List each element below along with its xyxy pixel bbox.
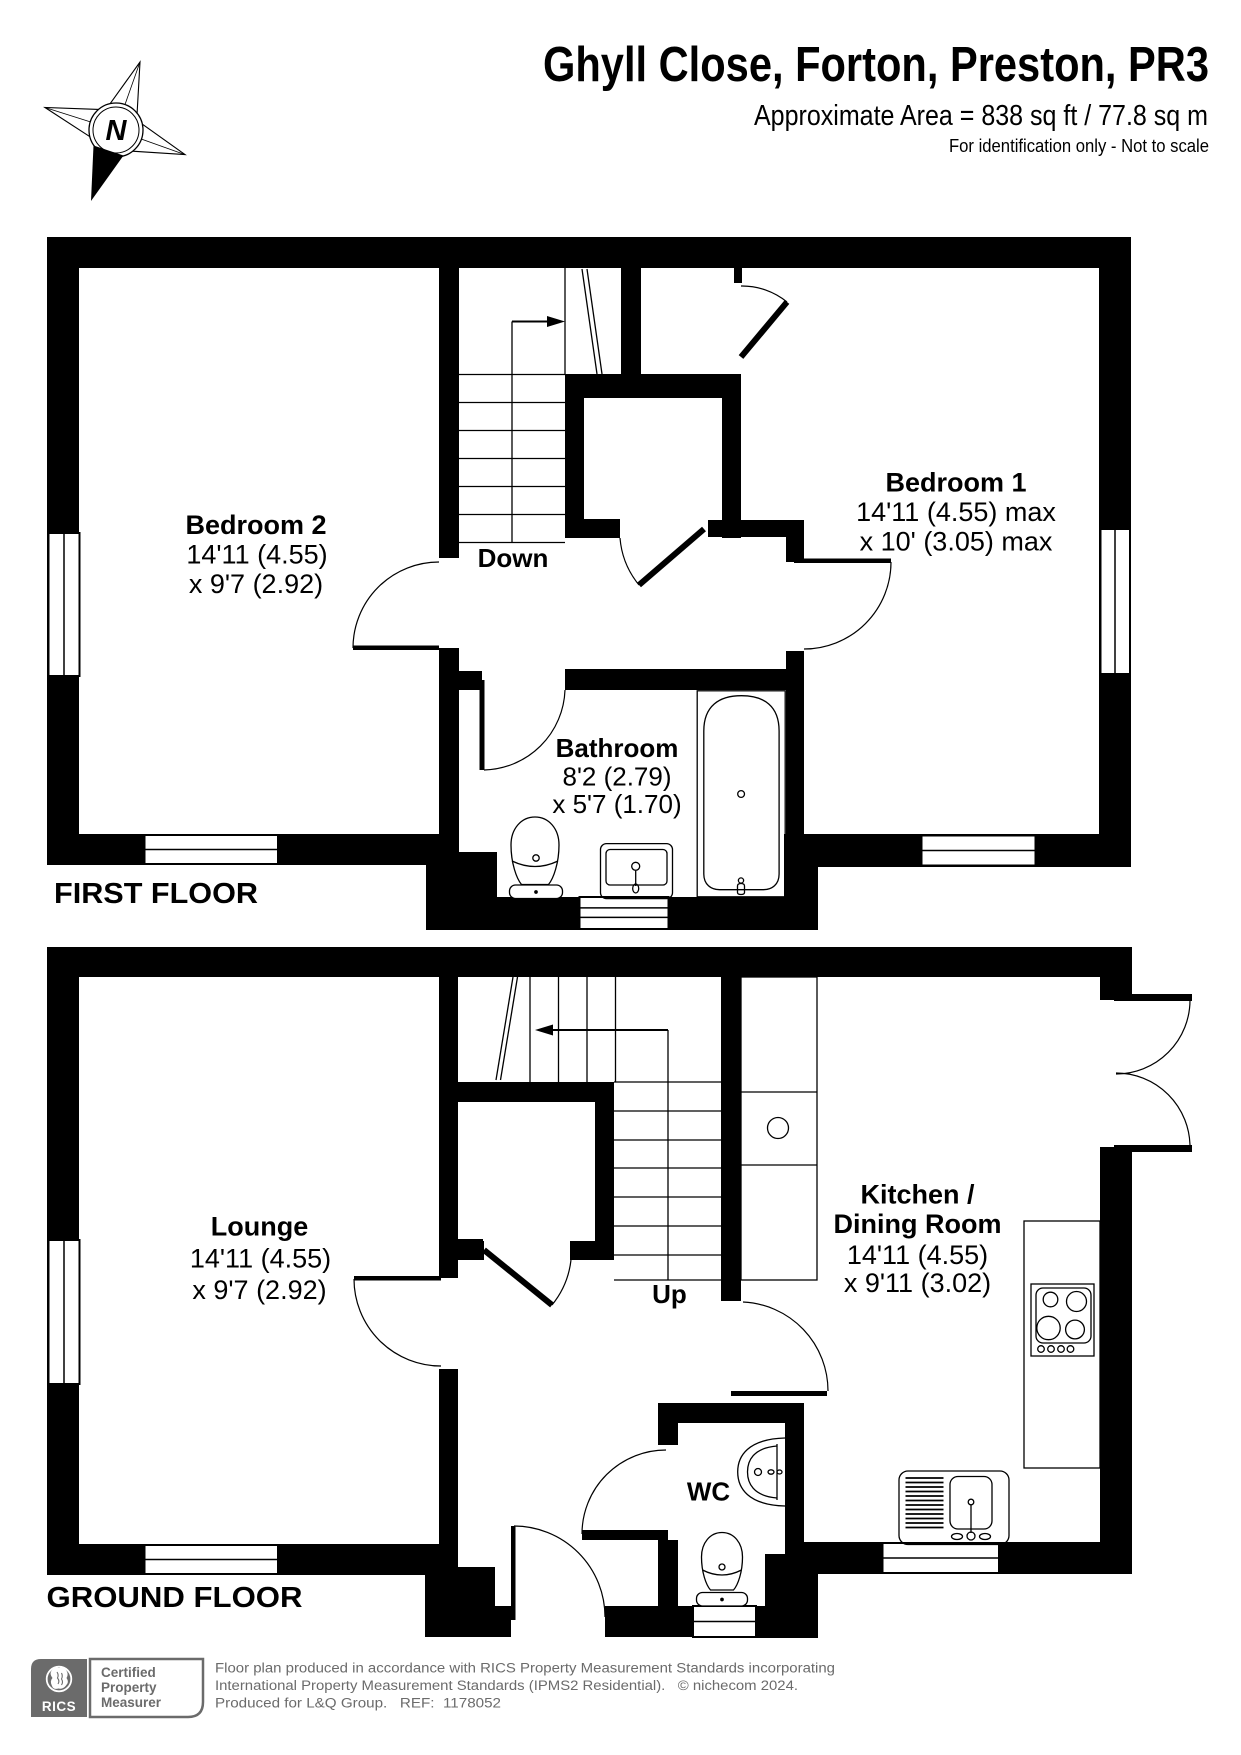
svg-text:Kitchen /: Kitchen / bbox=[860, 1180, 975, 1210]
svg-text:Measurer: Measurer bbox=[101, 1695, 162, 1710]
svg-text:FIRST FLOOR: FIRST FLOOR bbox=[54, 878, 258, 910]
svg-text:Property: Property bbox=[101, 1680, 157, 1695]
svg-text:RICS: RICS bbox=[42, 1699, 76, 1714]
svg-text:Approximate Area = 838 sq ft /: Approximate Area = 838 sq ft / 77.8 sq m bbox=[754, 100, 1208, 132]
svg-text:Up: Up bbox=[652, 1279, 687, 1309]
svg-text:Lounge: Lounge bbox=[211, 1212, 308, 1242]
svg-text:Dining Room: Dining Room bbox=[834, 1209, 1002, 1239]
svg-text:14'11 (4.55): 14'11 (4.55) bbox=[847, 1240, 988, 1270]
svg-text:For identification only - Not: For identification only - Not to scale bbox=[949, 135, 1209, 156]
svg-text:Floor plan produced in accorda: Floor plan produced in accordance with R… bbox=[215, 1661, 835, 1677]
svg-text:Bedroom 2: Bedroom 2 bbox=[185, 510, 326, 540]
svg-text:x 9'11 (3.02): x 9'11 (3.02) bbox=[844, 1268, 991, 1298]
svg-text:International Property Measure: International Property Measurement Stand… bbox=[215, 1678, 798, 1694]
svg-text:x 9'7 (2.92): x 9'7 (2.92) bbox=[192, 1275, 326, 1305]
svg-text:Bathroom: Bathroom bbox=[556, 733, 679, 763]
svg-text:Down: Down bbox=[478, 543, 549, 573]
svg-text:x 10' (3.05) max: x 10' (3.05) max bbox=[860, 527, 1053, 557]
svg-text:Certified: Certified bbox=[101, 1665, 156, 1680]
svg-text:14'11 (4.55): 14'11 (4.55) bbox=[186, 540, 327, 570]
svg-text:Bedroom 1: Bedroom 1 bbox=[885, 468, 1026, 498]
svg-text:x 9'7 (2.92): x 9'7 (2.92) bbox=[189, 569, 323, 599]
svg-text:N: N bbox=[106, 115, 128, 147]
svg-text:14'11 (4.55) max: 14'11 (4.55) max bbox=[856, 497, 1056, 527]
svg-text:Ghyll Close, Forton, Preston,: Ghyll Close, Forton, Preston, PR3 bbox=[543, 38, 1209, 92]
svg-text:GROUND FLOOR: GROUND FLOOR bbox=[47, 1582, 303, 1614]
svg-text:WC: WC bbox=[687, 1477, 731, 1507]
svg-text:x 5'7 (1.70): x 5'7 (1.70) bbox=[552, 789, 681, 819]
svg-text:14'11 (4.55): 14'11 (4.55) bbox=[190, 1244, 331, 1274]
svg-text:8'2 (2.79): 8'2 (2.79) bbox=[562, 762, 671, 792]
svg-text:Produced for L&Q Group. REF:: Produced for L&Q Group. REF: 1178052 bbox=[215, 1696, 501, 1712]
